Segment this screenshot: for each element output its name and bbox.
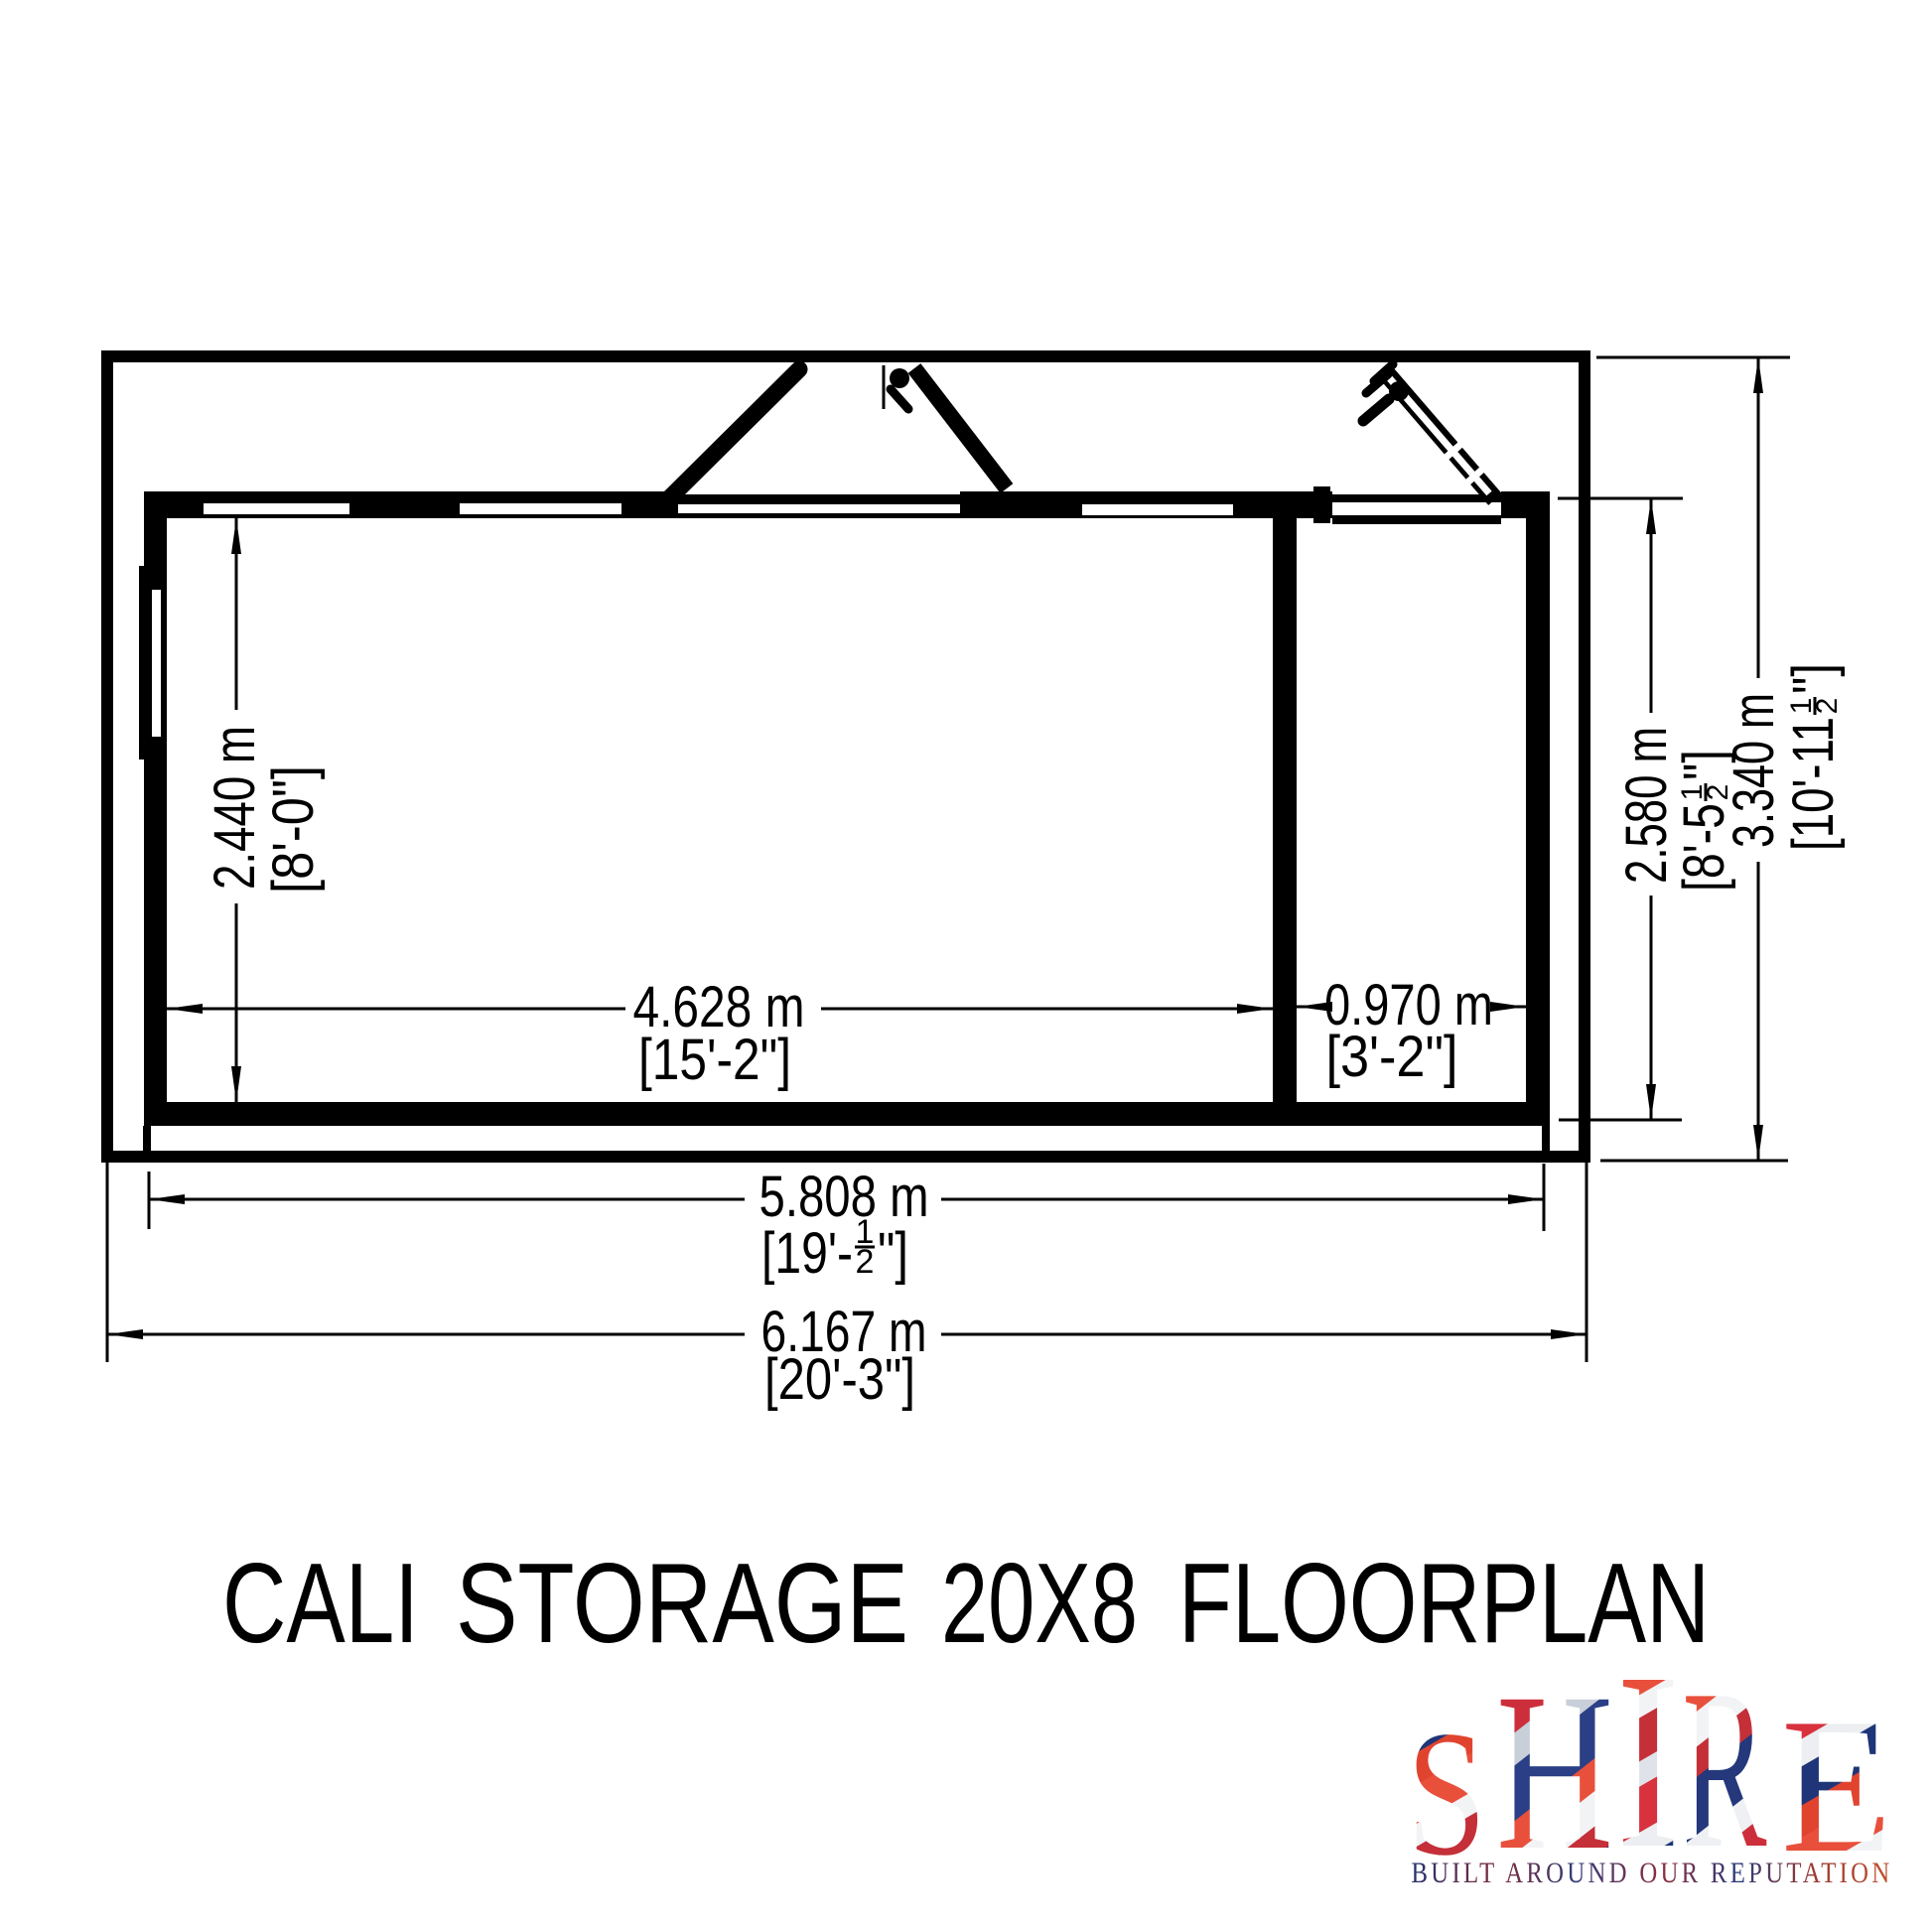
svg-text:[8'-0"]: [8'-0"]: [261, 765, 326, 894]
svg-text:2: 2: [1811, 698, 1844, 715]
svg-text:[19'-: [19'-: [761, 1221, 853, 1286]
svg-text:CALI: CALI: [222, 1541, 419, 1667]
svg-text:3.340 m: 3.340 m: [1722, 693, 1786, 848]
svg-text:20X8: 20X8: [941, 1541, 1138, 1667]
svg-text:2: 2: [856, 1243, 875, 1281]
svg-text:[20'-3"]: [20'-3"]: [764, 1347, 915, 1412]
svg-text:BUILT AROUND OUR REPUTATION: BUILT AROUND OUR REPUTATION: [1412, 1857, 1893, 1889]
svg-text:STORAGE: STORAGE: [456, 1541, 908, 1667]
svg-text:5.808 m: 5.808 m: [759, 1165, 929, 1229]
svg-text:[10'-11: [10'-11: [1781, 717, 1846, 851]
svg-text:"]: "]: [1781, 663, 1846, 694]
svg-text:[3'-2"]: [3'-2"]: [1326, 1025, 1458, 1089]
svg-text:"]: "]: [878, 1221, 908, 1286]
svg-text:2.440 m: 2.440 m: [203, 726, 267, 890]
svg-text:[15'-2"]: [15'-2"]: [638, 1028, 791, 1092]
svg-text:2.580 m: 2.580 m: [1614, 727, 1679, 884]
